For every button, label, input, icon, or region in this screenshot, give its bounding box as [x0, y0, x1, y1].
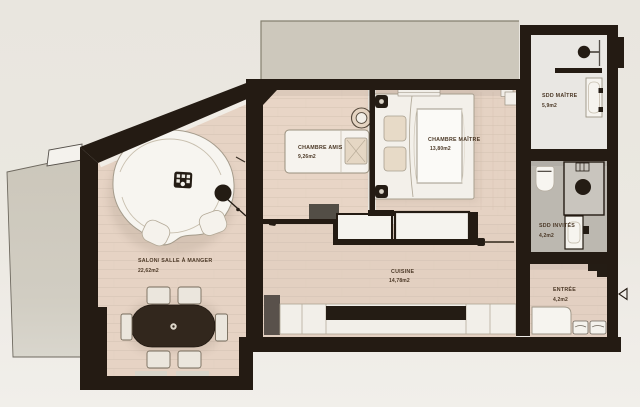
- svg-text:13,80m2: 13,80m2: [430, 146, 451, 152]
- svg-text:5,9m2: 5,9m2: [542, 103, 557, 109]
- svg-text:SALON/ SALLE À MANGER: SALON/ SALLE À MANGER: [138, 257, 212, 264]
- svg-text:22,62m2: 22,62m2: [138, 268, 159, 274]
- svg-text:4,2m2: 4,2m2: [553, 297, 568, 303]
- svg-text:SDD INVITÉS: SDD INVITÉS: [539, 221, 575, 229]
- svg-text:ENTRÉE: ENTRÉE: [553, 285, 576, 293]
- svg-text:CHAMBRE AMIS: CHAMBRE AMIS: [298, 145, 343, 151]
- svg-text:4,2m2: 4,2m2: [539, 233, 554, 239]
- svg-text:CUISINE: CUISINE: [391, 269, 414, 275]
- svg-text:CHAMBRE MAÎTRE: CHAMBRE MAÎTRE: [428, 135, 481, 143]
- svg-text:SDD MAÎTRE: SDD MAÎTRE: [542, 91, 578, 99]
- svg-text:14,78m2: 14,78m2: [389, 278, 410, 284]
- svg-text:9,26m2: 9,26m2: [298, 154, 316, 160]
